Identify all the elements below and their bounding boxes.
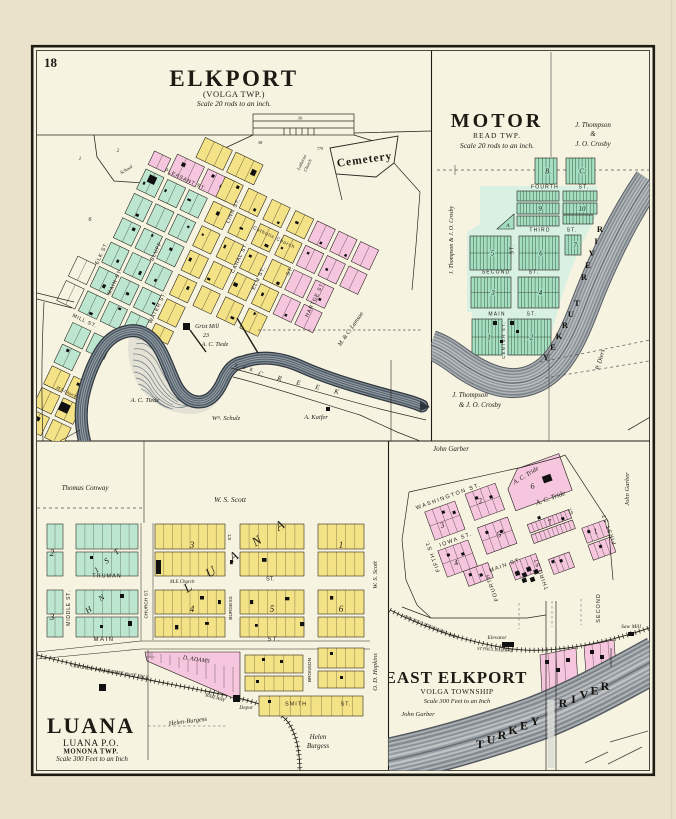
svg-text:EAST ELKPORT: EAST ELKPORT xyxy=(385,668,528,687)
svg-text:MOTOR: MOTOR xyxy=(451,110,543,132)
svg-text:Depot: Depot xyxy=(238,705,253,711)
svg-text:23: 23 xyxy=(203,333,209,339)
svg-text:ELKPORT: ELKPORT xyxy=(169,66,298,91)
svg-text:(VOLGA TWP.): (VOLGA TWP.) xyxy=(203,89,265,99)
svg-text:CENTER ST.: CENTER ST. xyxy=(501,321,506,359)
svg-text:V: V xyxy=(580,688,589,702)
svg-text:C.: C. xyxy=(579,168,586,176)
svg-text:Helen: Helen xyxy=(309,733,327,741)
svg-text:2: 2 xyxy=(530,334,534,342)
svg-text:LUANA: LUANA xyxy=(47,713,135,738)
svg-text:ST.: ST. xyxy=(341,702,352,708)
svg-text:SECOND: SECOND xyxy=(482,270,511,276)
svg-text:Thomas Conway: Thomas Conway xyxy=(62,484,110,492)
svg-text:E: E xyxy=(585,260,591,270)
svg-text:J. Thompson: J. Thompson xyxy=(452,391,488,399)
svg-text:2: 2 xyxy=(50,548,55,558)
svg-text:John Garber: John Garber xyxy=(433,445,469,453)
svg-text:ST.: ST. xyxy=(267,637,280,643)
svg-text:I: I xyxy=(571,692,576,706)
svg-text:R: R xyxy=(581,272,588,282)
svg-text:K: K xyxy=(556,331,563,341)
svg-text:ST.: ST. xyxy=(527,312,538,318)
svg-text:T: T xyxy=(574,298,580,308)
svg-text:O. D. Hopkins: O. D. Hopkins xyxy=(372,653,379,691)
svg-text:A. Kaifer: A. Kaifer xyxy=(303,414,328,421)
svg-text:6: 6 xyxy=(539,250,543,258)
svg-text:READ TWP.: READ TWP. xyxy=(473,131,521,140)
svg-text:Burgess: Burgess xyxy=(307,742,330,750)
svg-text:6: 6 xyxy=(339,604,344,614)
svg-text:V: V xyxy=(589,248,596,258)
svg-text:John Garber: John Garber xyxy=(624,472,631,506)
svg-text:Y: Y xyxy=(531,714,540,728)
svg-text:Scale 20 rods to an inch.: Scale 20 rods to an inch. xyxy=(197,99,271,108)
svg-text:38: 38 xyxy=(258,140,263,145)
svg-text:9: 9 xyxy=(538,205,542,213)
svg-text:30: 30 xyxy=(298,116,303,121)
svg-text:U: U xyxy=(568,309,574,319)
svg-text:1: 1 xyxy=(487,334,491,342)
svg-text:ST.: ST. xyxy=(529,270,540,276)
svg-text:Scale 20 rods to an inch.: Scale 20 rods to an inch. xyxy=(460,141,534,150)
svg-text:E: E xyxy=(550,342,556,352)
svg-text:R: R xyxy=(601,679,610,693)
svg-text:3: 3 xyxy=(490,289,495,297)
svg-text:Grist Mill: Grist Mill xyxy=(195,324,219,330)
svg-text:W. S. Scott: W. S. Scott xyxy=(214,495,247,504)
svg-text:MAIN: MAIN xyxy=(488,312,505,318)
svg-text:BRONSON: BRONSON xyxy=(307,657,313,682)
svg-text:BURGESS: BURGESS xyxy=(228,596,234,619)
svg-text:W. S. Scott: W. S. Scott xyxy=(372,561,379,589)
svg-text:SMITH: SMITH xyxy=(285,702,307,708)
svg-text:CHURCH ST.: CHURCH ST. xyxy=(144,589,150,618)
svg-text:THIRD: THIRD xyxy=(529,228,550,234)
svg-text:Saw Mill: Saw Mill xyxy=(621,624,641,630)
svg-text:ST.: ST. xyxy=(510,244,516,255)
svg-text:6: 6 xyxy=(89,217,92,223)
svg-text:MIDDLE ST.: MIDDLE ST. xyxy=(66,590,72,626)
svg-text:R: R xyxy=(559,696,568,710)
svg-text:Scale 300 Feet to an Inch: Scale 300 Feet to an Inch xyxy=(56,755,128,763)
svg-text:7: 7 xyxy=(573,242,577,250)
svg-text:Scale 300 Feet to an Inch: Scale 300 Feet to an Inch xyxy=(424,698,491,705)
svg-text:J. O. Crosby: J. O. Crosby xyxy=(575,140,611,148)
svg-text:FOURTH: FOURTH xyxy=(531,185,559,191)
svg-text:LUANA P.O.: LUANA P.O. xyxy=(63,739,119,749)
svg-text:K: K xyxy=(508,723,518,737)
svg-text:E: E xyxy=(590,683,598,697)
svg-text:B.: B. xyxy=(545,168,551,176)
svg-text:10: 10 xyxy=(579,205,587,213)
svg-text:1: 1 xyxy=(339,540,344,550)
svg-text:5: 5 xyxy=(270,604,275,614)
svg-text:ST.: ST. xyxy=(266,577,274,583)
svg-text:R: R xyxy=(498,728,507,742)
svg-text:4: 4 xyxy=(190,604,195,614)
svg-text:MAIN: MAIN xyxy=(94,637,115,643)
svg-text:VOLGA TOWNSHIP: VOLGA TOWNSHIP xyxy=(420,687,493,696)
svg-text:ST.: ST. xyxy=(227,534,233,541)
svg-text:R: R xyxy=(562,320,569,330)
svg-text:SECOND: SECOND xyxy=(596,593,602,623)
svg-text:J. Thompson & J. O. Crosby: J. Thompson & J. O. Crosby xyxy=(449,205,455,274)
svg-text:779: 779 xyxy=(317,146,323,151)
svg-text:18: 18 xyxy=(44,55,58,70)
svg-text:4: 4 xyxy=(539,289,543,297)
svg-text:R: R xyxy=(597,224,604,234)
svg-text:3: 3 xyxy=(189,540,195,550)
svg-text:ST.: ST. xyxy=(567,228,578,234)
svg-text:A. C. Tiede: A. C. Tiede xyxy=(130,397,160,404)
svg-text:J. Thompson: J. Thompson xyxy=(575,121,611,129)
svg-text:U: U xyxy=(487,732,496,746)
svg-text:3: 3 xyxy=(49,612,55,622)
svg-text:& J. O. Crosby: & J. O. Crosby xyxy=(459,401,502,409)
svg-text:1: 1 xyxy=(79,157,82,162)
svg-text:Wᵐ. Schulz: Wᵐ. Schulz xyxy=(212,415,241,422)
svg-text:John Garber: John Garber xyxy=(401,711,435,718)
svg-text:5: 5 xyxy=(491,250,495,258)
svg-text:Elevator: Elevator xyxy=(487,635,508,641)
svg-text:A. C. Tiede: A. C. Tiede xyxy=(201,342,229,348)
svg-text:&: & xyxy=(590,130,596,138)
svg-text:T: T xyxy=(476,737,484,751)
svg-text:E: E xyxy=(520,719,528,733)
svg-text:ST.: ST. xyxy=(579,185,590,191)
